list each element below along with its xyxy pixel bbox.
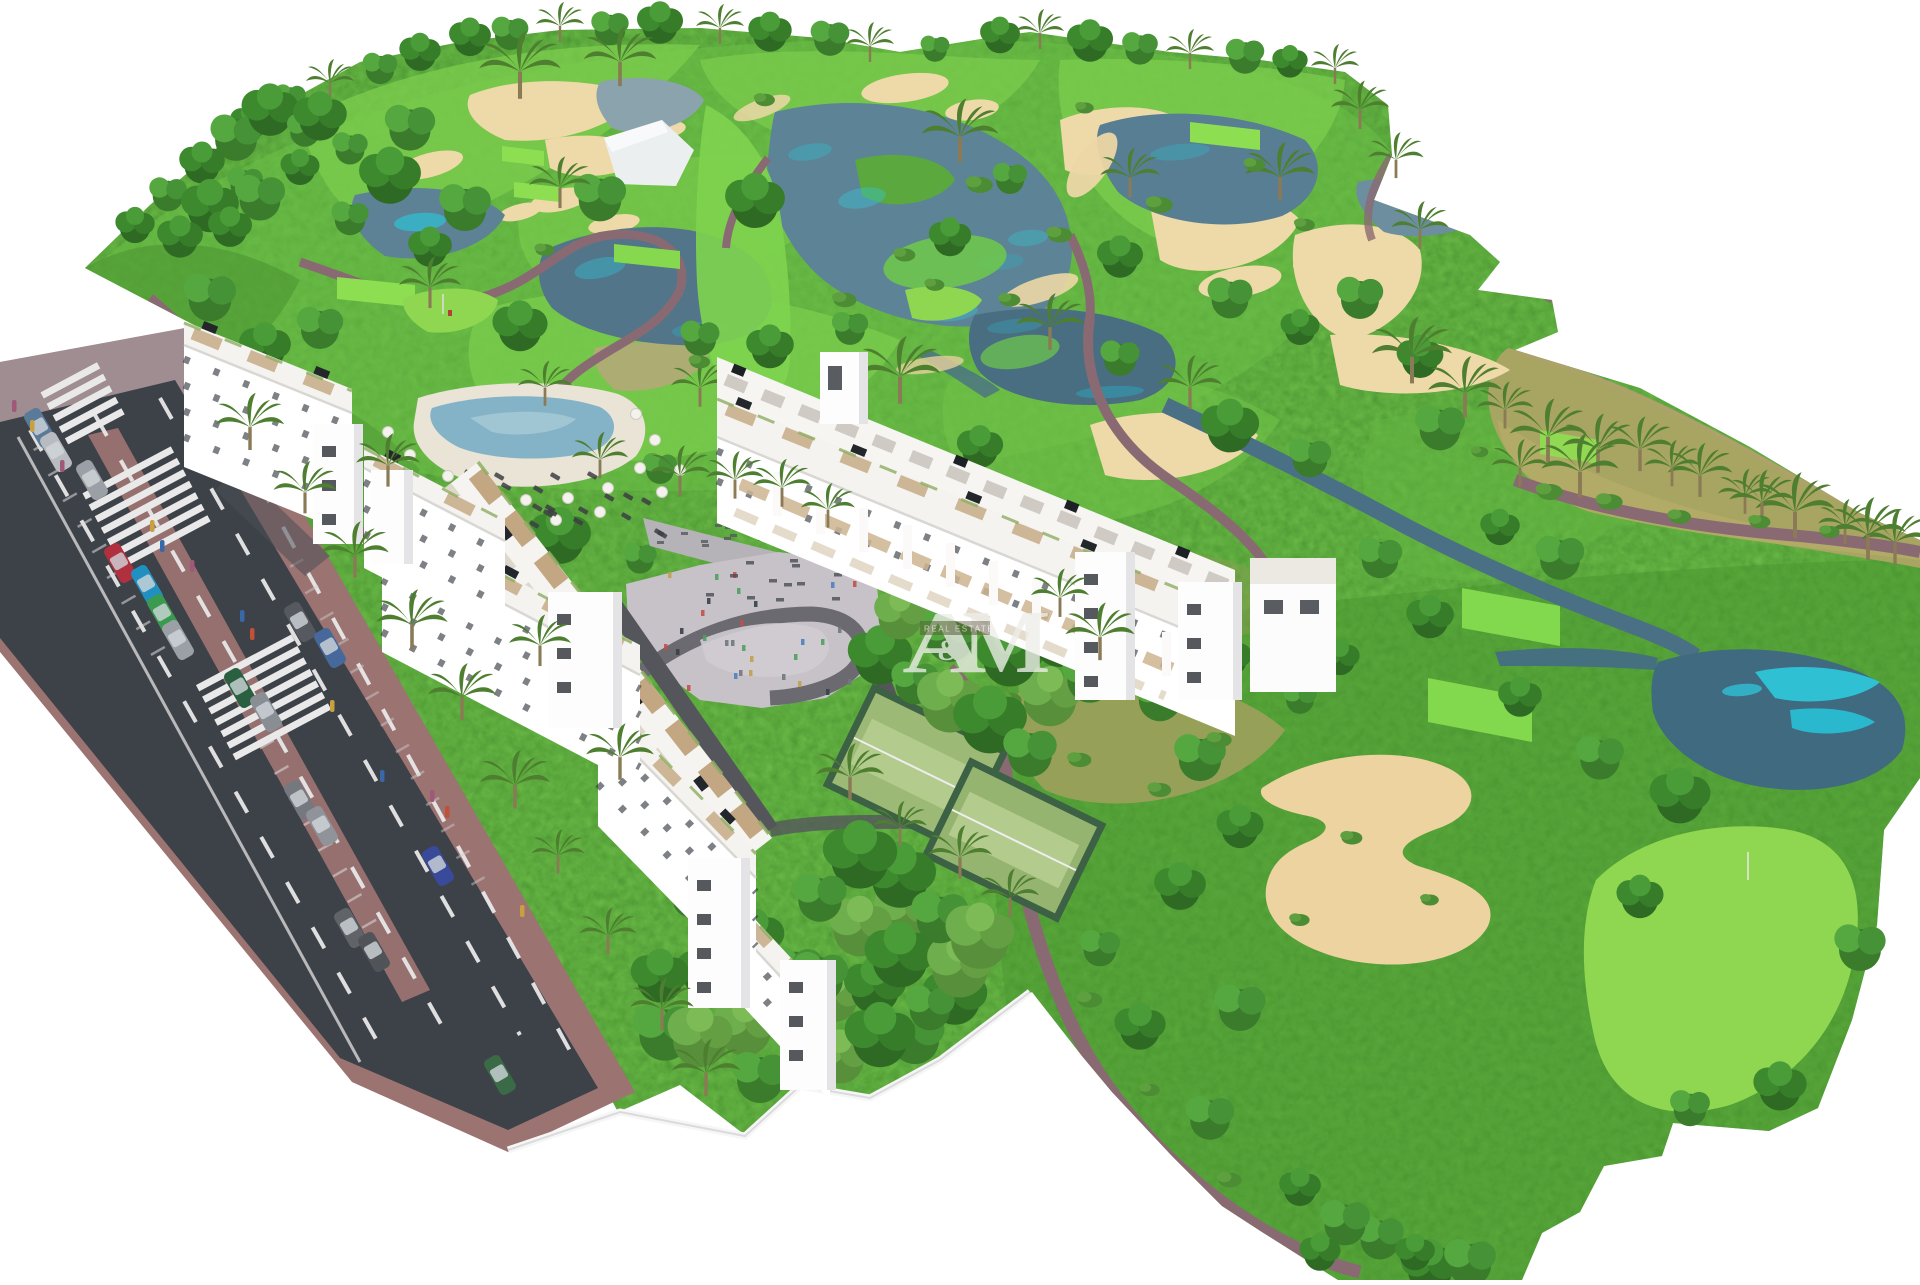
svg-text:&: & — [937, 634, 962, 667]
svg-text:REAL ESTATE: REAL ESTATE — [924, 625, 994, 634]
svg-text:M: M — [962, 592, 1050, 692]
